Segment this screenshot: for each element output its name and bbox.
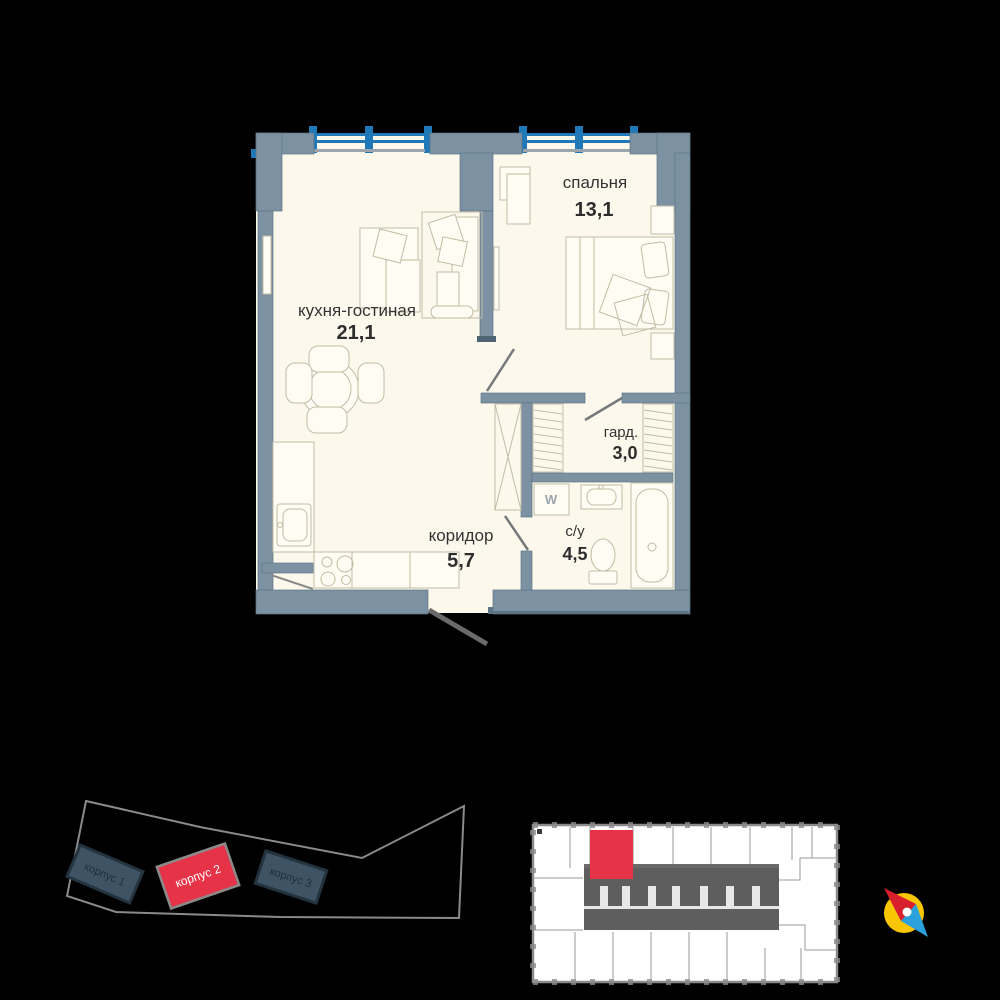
room-area-bedroom: 13,1	[575, 199, 614, 221]
building-korpus-2-highlighted[interactable]: корпус 2	[157, 843, 239, 908]
room-name-bathroom: с/у	[565, 523, 585, 540]
room-area-wardrobe: 3,0	[612, 443, 637, 463]
building-korpus-1[interactable]: корпус 1	[67, 845, 143, 903]
kitchen-sink-icon	[277, 504, 311, 546]
bathtub-icon	[631, 483, 673, 588]
tv-icon	[494, 247, 499, 310]
room-name-kitchen-living: кухня-гостиная	[298, 301, 416, 320]
bathroom-sink-icon	[581, 485, 622, 509]
room-area-bathroom: 4,5	[562, 544, 587, 564]
toilet-icon	[589, 539, 617, 584]
washing-machine-icon: W	[534, 484, 569, 515]
room-area-corridor: 5,7	[447, 550, 475, 572]
nightstand	[651, 333, 674, 359]
flat-plan-canvas: W кухня-гостиная 21,1 спальня 13,1	[0, 0, 1000, 1000]
room-name-bedroom: спальня	[563, 173, 628, 192]
unit-highlight-marker[interactable]	[590, 830, 633, 879]
flat-card: W кухня-гостиная 21,1 спальня 13,1	[0, 0, 1000, 1000]
site-plan: корпус 1 корпус 2 корпус 3	[67, 801, 464, 918]
floor-plate-minimap	[533, 825, 837, 982]
room-name-wardrobe: гард.	[604, 424, 638, 441]
apartment-plan: W кухня-гостиная 21,1 спальня 13,1	[251, 126, 690, 644]
washer-letter: W	[545, 492, 558, 507]
compass-icon	[884, 888, 928, 937]
building-korpus-3[interactable]: корпус 3	[255, 851, 326, 903]
entry-door-icon	[429, 610, 487, 644]
nightstand	[651, 206, 674, 234]
room-name-corridor: коридор	[429, 526, 494, 545]
radiator-icon	[263, 236, 271, 294]
room-area-kitchen-living: 21,1	[337, 322, 376, 344]
bed	[566, 237, 673, 336]
